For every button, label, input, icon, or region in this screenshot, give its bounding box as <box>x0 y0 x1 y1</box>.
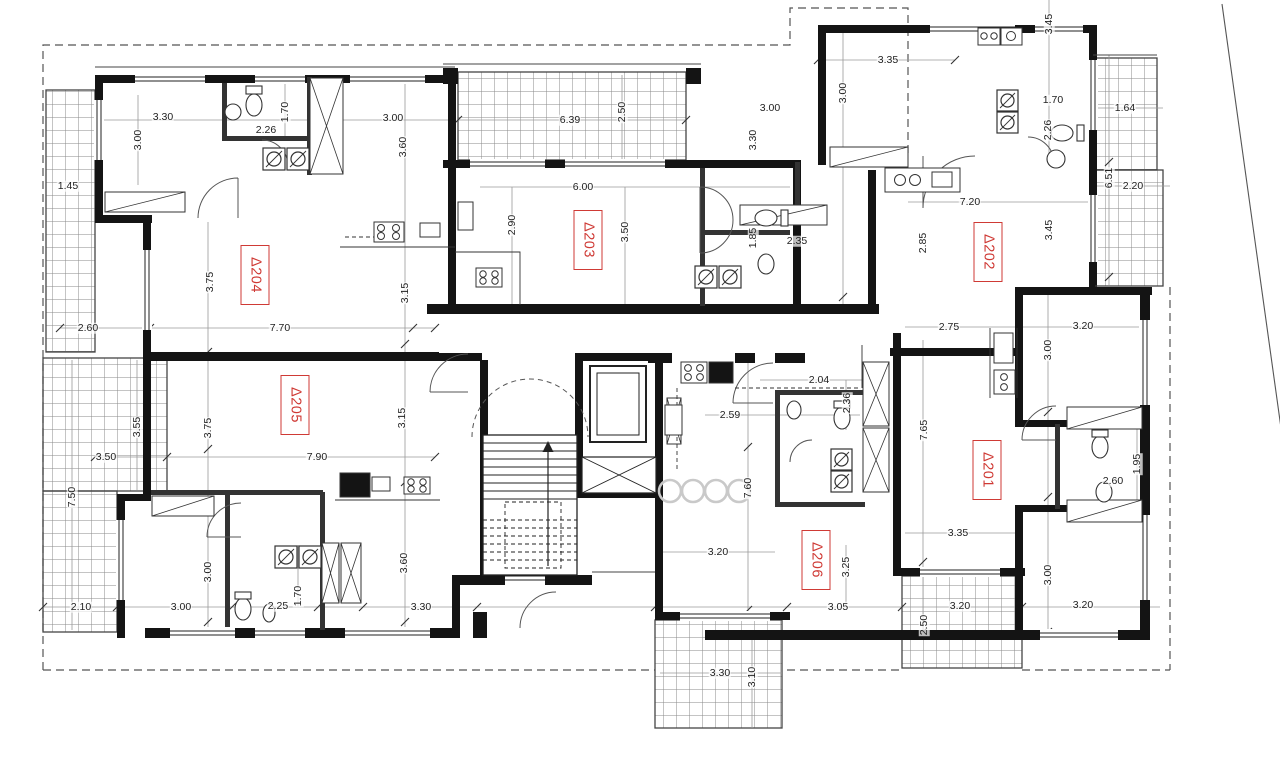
dim-label: 3.30 <box>748 129 759 151</box>
dim-label: 2.90 <box>507 214 518 236</box>
stove-icon <box>681 362 707 383</box>
dim-label: 3.50 <box>95 452 117 463</box>
dim-label: 2.85 <box>918 232 929 254</box>
dim-label: 3.60 <box>398 136 409 158</box>
dim-label: 1.70 <box>1042 95 1064 106</box>
apartment-label-d205: Δ205 <box>281 375 310 435</box>
dim-label: 3.00 <box>170 602 192 613</box>
dim-label: 2.35 <box>786 236 808 247</box>
dim-label: 3.05 <box>827 602 849 613</box>
dim-label: 7.50 <box>67 486 78 508</box>
stove-icon <box>404 477 430 494</box>
dim-label: 2.26 <box>1043 119 1054 141</box>
dim-label: 2.60 <box>77 323 99 334</box>
dim-label: 6.00 <box>572 182 594 193</box>
dim-label: 3.00 <box>838 82 849 104</box>
dim-label: 3.75 <box>205 271 216 293</box>
balcony-right-upper <box>1095 58 1157 170</box>
dim-label: 3.20 <box>707 547 729 558</box>
floor-plan-drawing <box>0 0 1280 779</box>
dim-label: 3.35 <box>947 528 969 539</box>
toilet-icon <box>1051 125 1073 141</box>
balcony-top-left <box>46 90 95 352</box>
dim-label: 3.45 <box>1044 219 1055 241</box>
dining-circles <box>659 480 750 502</box>
dim-label: 7.65 <box>919 419 930 441</box>
dim-label: 3.15 <box>400 282 411 304</box>
dim-label: 3.00 <box>1043 339 1054 361</box>
kitchen-cabinet <box>340 473 370 497</box>
dim-label: 1.45 <box>57 181 79 192</box>
washbasin-icon <box>225 104 241 120</box>
dim-label: 3.50 <box>620 221 631 243</box>
dim-label: 3.20 <box>1072 600 1094 611</box>
dim-label: 7.60 <box>743 477 754 499</box>
dim-label: 1.95 <box>1132 453 1143 475</box>
sink-icon <box>994 333 1013 363</box>
dim-label: 6.39 <box>559 115 581 126</box>
sink-icon <box>665 405 682 435</box>
dim-label: 3.00 <box>133 129 144 151</box>
dim-label: 3.00 <box>382 113 404 124</box>
dim-label: 2.50 <box>919 614 930 636</box>
apartment-label-d206: Δ206 <box>802 530 831 590</box>
toilet-icon <box>755 210 777 226</box>
floor-plan-page: Δ204 Δ203 Δ202 Δ205 Δ201 Δ206 1.45 3.30 … <box>0 0 1280 779</box>
dim-label: 3.30 <box>709 668 731 679</box>
dim-label: 3.60 <box>399 552 410 574</box>
dim-label: 3.20 <box>1072 321 1094 332</box>
dim-label: 2.36 <box>842 392 853 414</box>
dim-label: 2.10 <box>70 602 92 613</box>
dim-label: 3.25 <box>841 556 852 578</box>
dim-label: 1.70 <box>293 585 304 607</box>
dim-label: 3.55 <box>132 416 143 438</box>
dim-label: 2.50 <box>617 101 628 123</box>
dim-label: 2.04 <box>808 375 830 386</box>
dim-label: 3.35 <box>877 55 899 66</box>
apartment-label-d203: Δ203 <box>574 210 603 270</box>
dim-label: 3.10 <box>747 666 758 688</box>
stove-icon <box>476 268 502 287</box>
toilet-icon <box>235 598 251 620</box>
dim-label: 3.45 <box>1044 13 1055 35</box>
dim-label: 3.00 <box>203 561 214 583</box>
dim-label: 2.75 <box>938 322 960 333</box>
sink-icon <box>420 223 440 237</box>
sink-icon <box>458 202 473 230</box>
dim-label: 7.90 <box>306 452 328 463</box>
dim-label: 3.00 <box>759 103 781 114</box>
apartment-label-d201: Δ201 <box>973 440 1002 500</box>
plot-diagonal-line <box>1222 4 1280 428</box>
toilet-icon <box>246 94 262 116</box>
dim-label: 3.30 <box>152 112 174 123</box>
dim-label: 2.60 <box>1102 476 1124 487</box>
dim-label: 7.70 <box>269 323 291 334</box>
shaft-cross-box <box>582 457 656 493</box>
sink-icon <box>372 477 390 491</box>
dim-label: 7.20 <box>959 197 981 208</box>
elevator <box>590 366 646 442</box>
dim-label: 2.25 <box>267 601 289 612</box>
dim-label: 6.51 <box>1104 167 1115 189</box>
washbasin-icon <box>1047 150 1065 168</box>
dim-label: 3.15 <box>397 407 408 429</box>
dim-label: 2.20 <box>1122 181 1144 192</box>
dim-label: 1.64 <box>1114 103 1136 114</box>
dim-label: 1.85 <box>748 227 759 249</box>
dim-label: 1.70 <box>280 101 291 123</box>
dim-label: 2.59 <box>719 410 741 421</box>
dim-label: 3.30 <box>410 602 432 613</box>
dim-label: 3.00 <box>1043 564 1054 586</box>
washbasin-icon <box>787 401 801 419</box>
washbasin-icon <box>758 254 774 274</box>
dim-label: 3.20 <box>949 601 971 612</box>
kitchen-cabinet <box>709 362 733 383</box>
toilet-icon <box>1092 436 1108 458</box>
dim-label: 3.75 <box>203 417 214 439</box>
staircase <box>483 435 577 575</box>
dim-label: 2.26 <box>255 125 277 136</box>
apartment-label-d204: Δ204 <box>241 245 270 305</box>
apartment-label-d202: Δ202 <box>974 222 1003 282</box>
